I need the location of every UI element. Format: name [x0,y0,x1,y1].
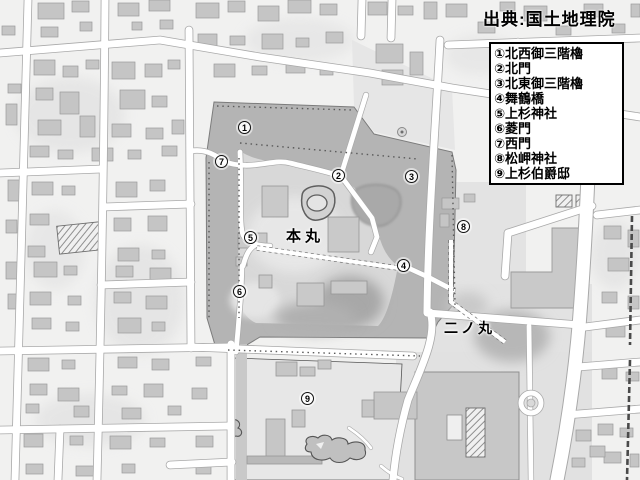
legend-item: ⑨上杉伯爵邸 [494,166,620,181]
legend-item: ③北東御三階櫓 [494,76,620,91]
area-label-honmaru: 本丸 [286,225,324,246]
map-screenshot: 出典:国土地理院 ①北西御三階櫓 ②北門 ③北東御三階櫓 ④舞鶴橋 ⑤上杉神社 … [0,0,640,480]
map-marker-6: 6 [233,285,246,298]
legend: ①北西御三階櫓 ②北門 ③北東御三階櫓 ④舞鶴橋 ⑤上杉神社 ⑥菱門 ⑦西門 ⑧… [489,42,624,185]
area-label-ninomaru: 二ノ丸 [444,318,495,338]
map-marker-5: 5 [244,231,257,244]
map-marker-1: 1 [238,121,251,134]
map-marker-4: 4 [397,259,410,272]
roundabout [521,393,541,413]
map-marker-9: 9 [301,392,314,405]
legend-item: ④舞鶴橋 [494,91,620,106]
legend-item: ①北西御三階櫓 [494,46,620,61]
map-marker-8: 8 [457,220,470,233]
monument-dot [398,128,407,137]
map-marker-3: 3 [405,170,418,183]
map-marker-7: 7 [215,155,228,168]
legend-item: ⑥菱門 [494,121,620,136]
map-marker-2: 2 [332,169,345,182]
legend-item: ⑤上杉神社 [494,106,620,121]
legend-item: ⑧松岬神社 [494,151,620,166]
legend-item: ②北門 [494,61,620,76]
source-attribution: 出典:国土地理院 [483,5,616,30]
legend-item: ⑦西門 [494,136,620,151]
annex-hedge [236,344,247,480]
honmaru-monument [302,186,335,220]
